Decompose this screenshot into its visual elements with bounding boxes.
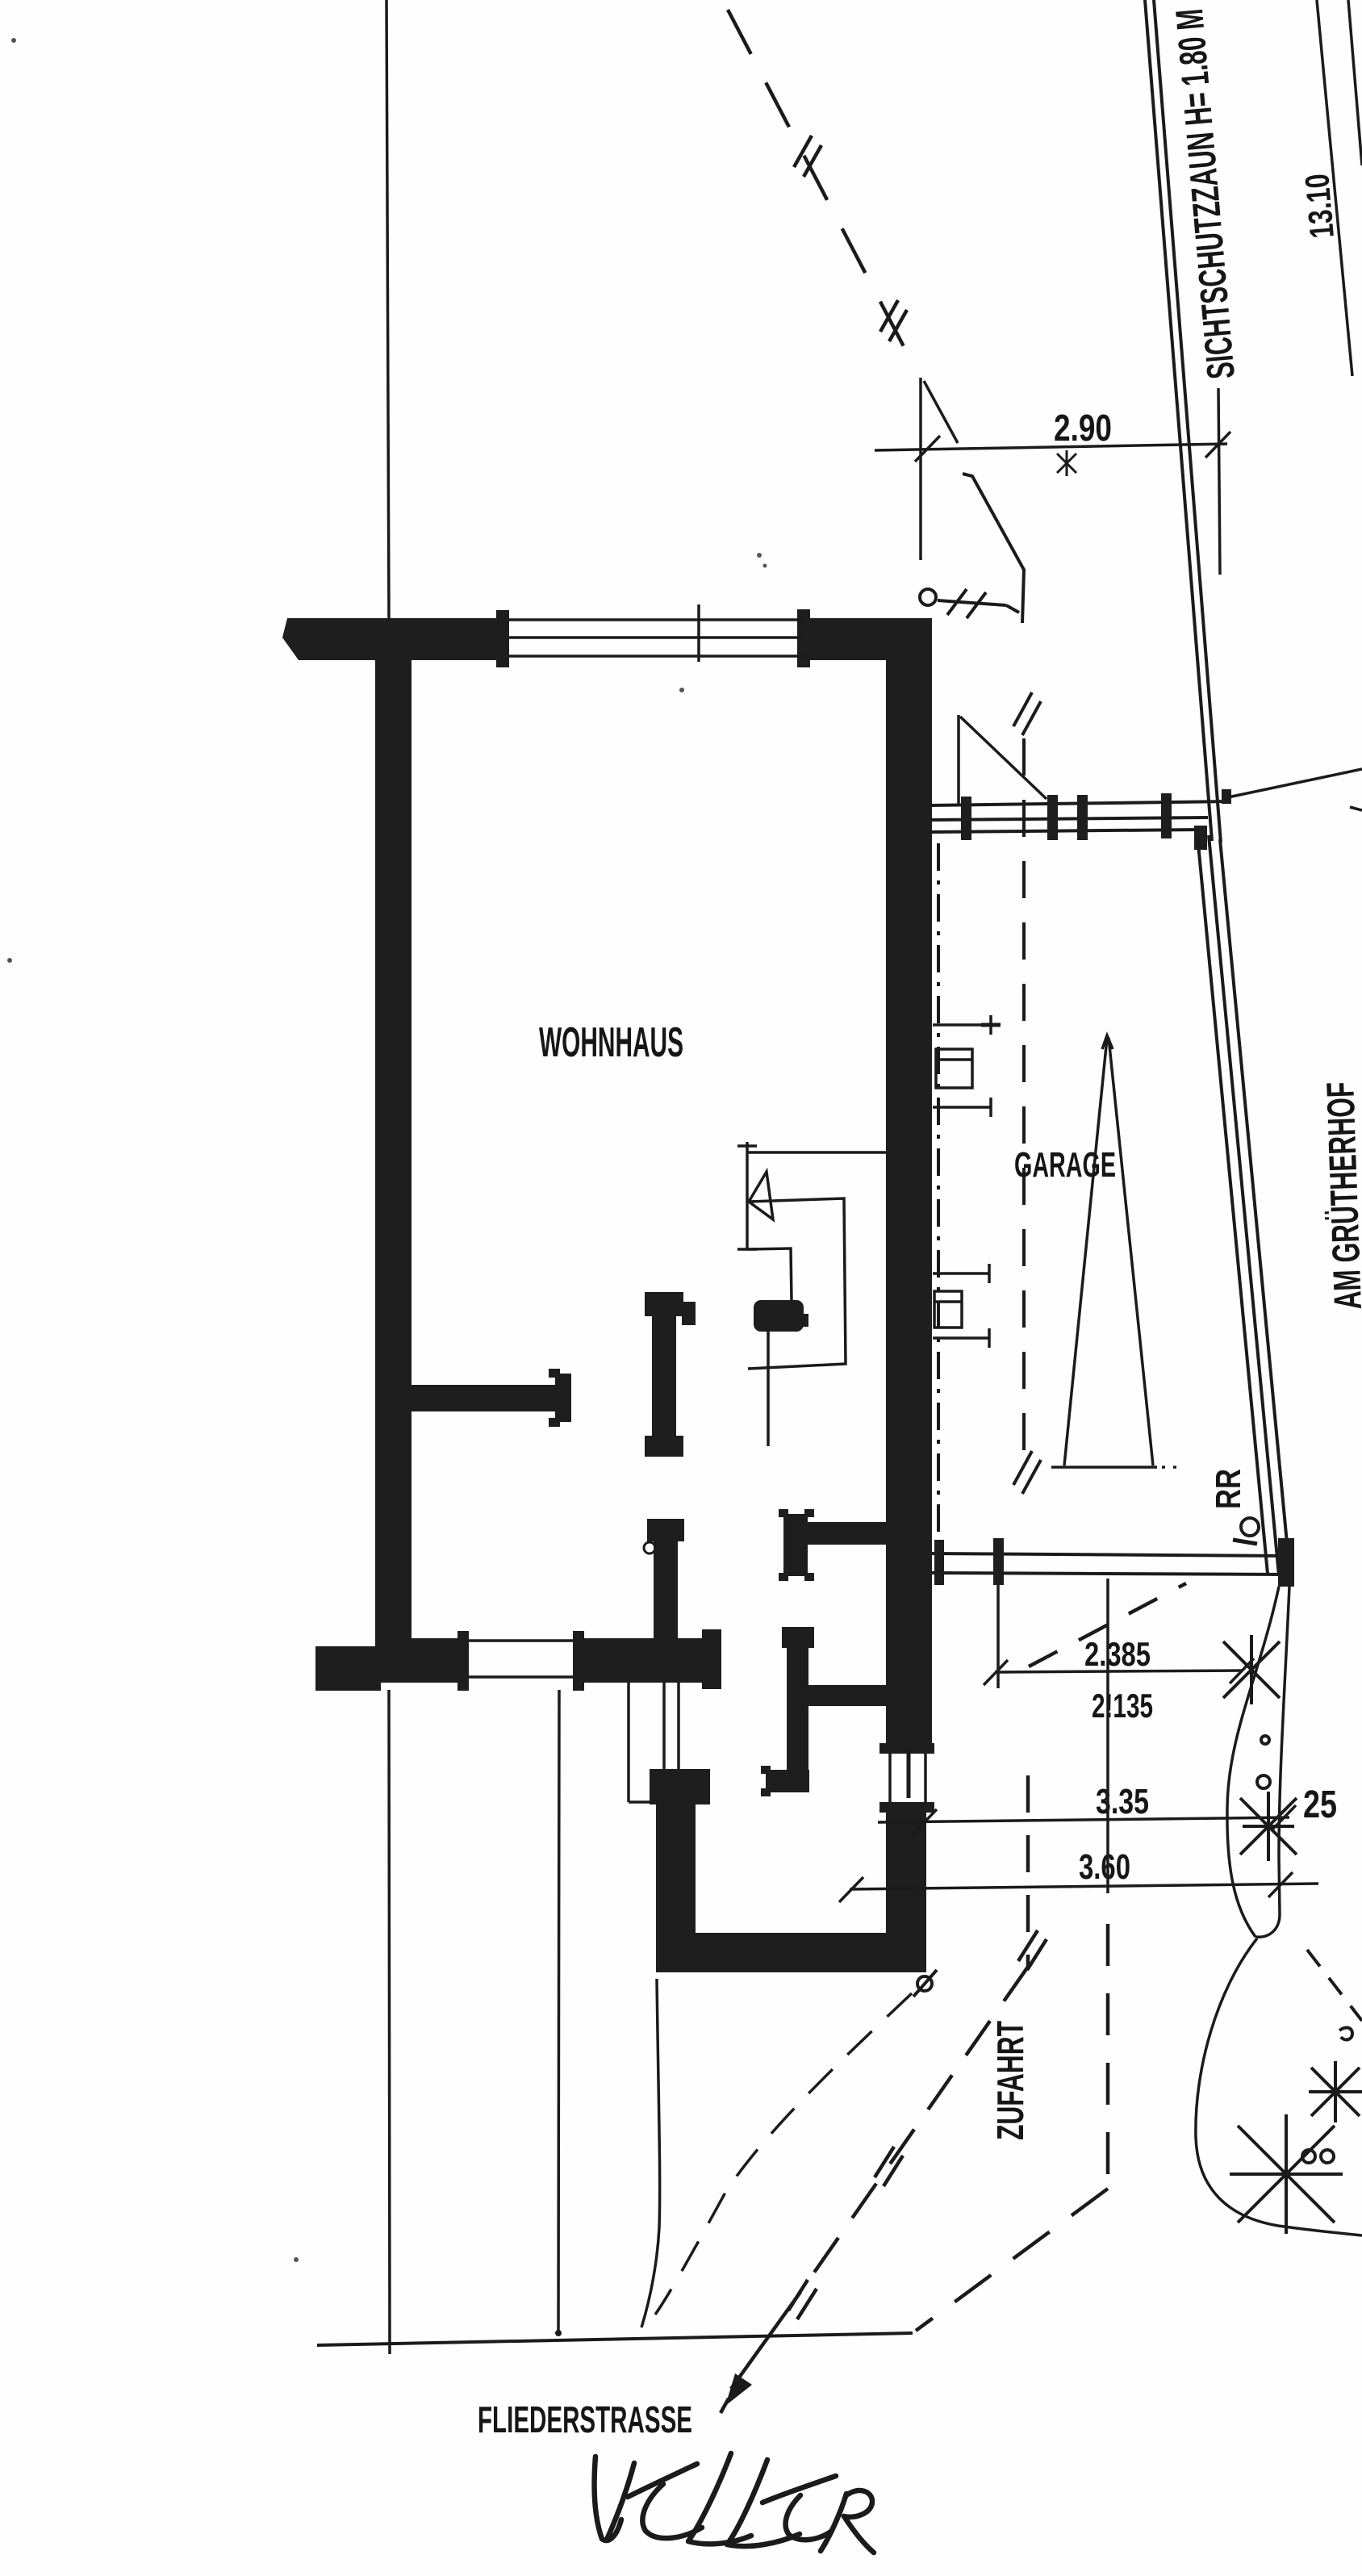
svg-text:WOHNHAUS: WOHNHAUS	[539, 1019, 683, 1066]
svg-text:FLIEDERSTRASSE: FLIEDERSTRASSE	[478, 2398, 692, 2440]
svg-text:AM GRÜTHERHOF: AM GRÜTHERHOF	[1319, 1081, 1362, 1311]
svg-text:3.35: 3.35	[1096, 1782, 1149, 1821]
svg-text:2.385: 2.385	[1084, 1635, 1151, 1673]
svg-text:3.60: 3.60	[1079, 1847, 1130, 1887]
svg-text:RR: RR	[1209, 1469, 1248, 1509]
svg-text:ZUFAHRT: ZUFAHRT	[989, 2021, 1031, 2140]
svg-text:25: 25	[1303, 1784, 1337, 1826]
svg-text:GARAGE: GARAGE	[1014, 1145, 1116, 1185]
svg-text:13.10: 13.10	[1297, 173, 1341, 240]
svg-text:2!135: 2!135	[1092, 1687, 1153, 1725]
svg-text:2.90: 2.90	[1054, 407, 1112, 449]
